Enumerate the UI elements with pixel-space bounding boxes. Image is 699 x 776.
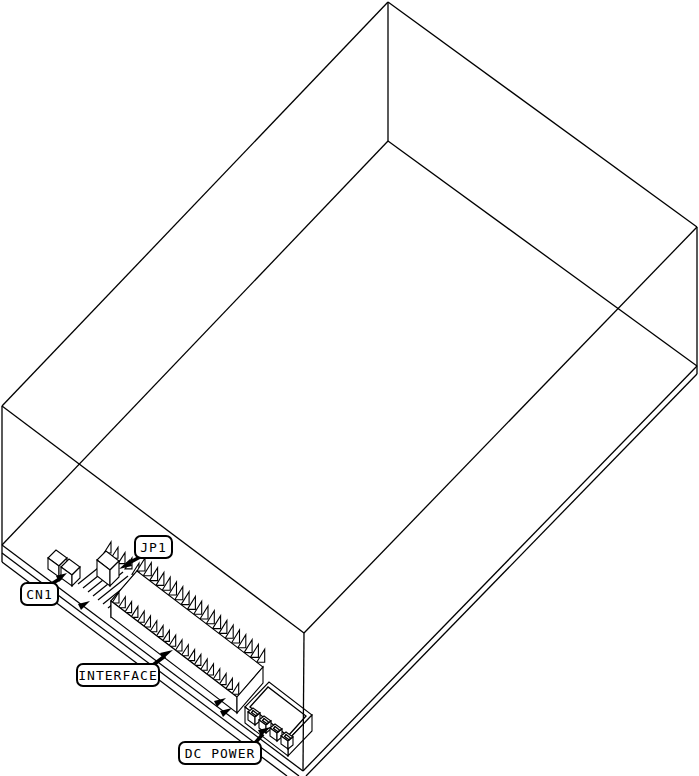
label-interface: INTERFACE bbox=[76, 663, 160, 687]
diagram-canvas bbox=[0, 0, 699, 776]
enclosure-front-edge bbox=[303, 633, 304, 771]
label-jp1: JP1 bbox=[134, 535, 173, 559]
hdd-wireframe-diagram: JP1 CN1 INTERFACE DC POWER bbox=[0, 0, 699, 776]
label-cn1: CN1 bbox=[20, 582, 59, 606]
drive-enclosure-outline bbox=[2, 2, 697, 776]
label-dc-power: DC POWER bbox=[178, 741, 262, 765]
interface-connector bbox=[111, 558, 265, 713]
cn1-connector bbox=[48, 550, 80, 586]
